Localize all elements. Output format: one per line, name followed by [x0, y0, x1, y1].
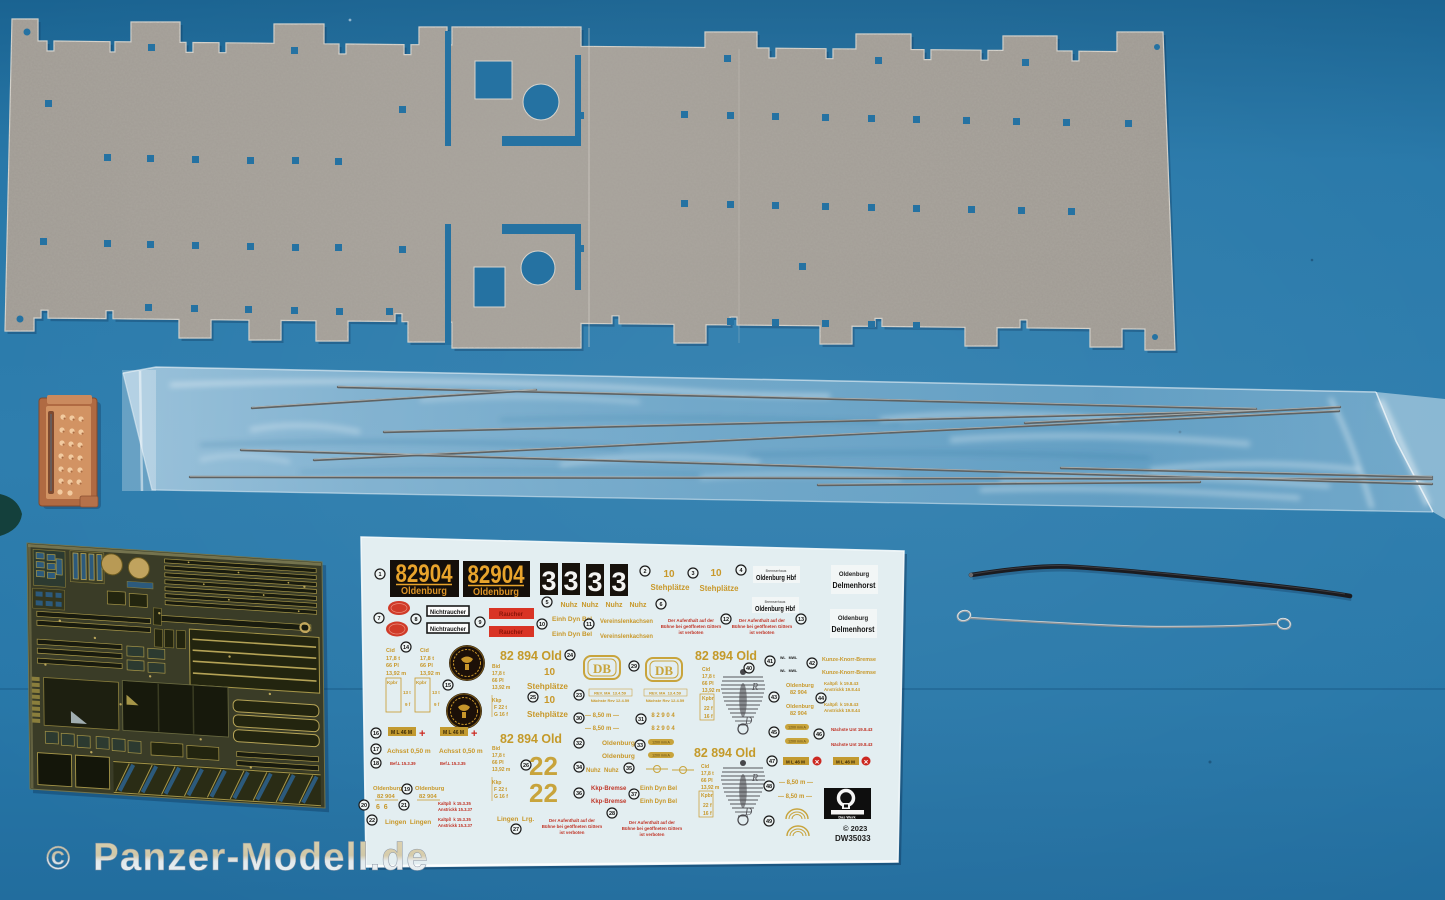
svg-text:6: 6 [659, 602, 662, 608]
svg-text:M L 46 M: M L 46 M [786, 760, 805, 765]
svg-text:Nächste Rev 12.4.59: Nächste Rev 12.4.59 [646, 698, 685, 703]
svg-text:Einh Dyn Bel: Einh Dyn Bel [640, 786, 677, 792]
svg-text:66 Pl: 66 Pl [492, 760, 504, 766]
svg-text:13 t: 13 t [432, 690, 440, 695]
svg-text:12: 12 [723, 617, 729, 623]
svg-text:6 6: 6 6 [376, 804, 388, 811]
svg-text:Raucher: Raucher [499, 612, 524, 618]
svg-text:Kkp-Bremse: Kkp-Bremse [591, 799, 627, 805]
svg-text:17,8 t: 17,8 t [386, 656, 400, 662]
svg-text:10: 10 [539, 622, 545, 628]
svg-text:17,8 t: 17,8 t [492, 671, 505, 677]
svg-text:14: 14 [403, 645, 410, 651]
svg-text:Anstrickk 19.8.44: Anstrickk 19.8.44 [824, 708, 860, 713]
svg-text:66 Pl: 66 Pl [492, 678, 504, 684]
svg-text:REV. MA 13.4.59: REV. MA 13.4.59 [594, 691, 627, 696]
svg-text:40: 40 [746, 666, 752, 672]
svg-text:17,8 t: 17,8 t [702, 674, 715, 680]
svg-text:Nuhz: Nuhz [581, 602, 599, 609]
svg-text:Kaltpß k 19.8.43: Kaltpß k 19.8.43 [824, 681, 859, 686]
svg-text:ist verboten: ist verboten [750, 630, 775, 635]
svg-text:Panzer-Modell.de: Panzer-Modell.de [93, 836, 429, 879]
svg-text:Cid: Cid [420, 648, 429, 654]
svg-text:3: 3 [563, 566, 578, 596]
svg-text:Raucher: Raucher [499, 630, 524, 636]
svg-text:Bremserhaus: Bremserhaus [766, 569, 787, 573]
svg-text:18: 18 [373, 761, 379, 767]
svg-text:13,92 m: 13,92 m [420, 671, 440, 677]
svg-text:Nächste Rev 12.4.59: Nächste Rev 12.4.59 [591, 698, 630, 703]
svg-text:Vereinslenkachsen: Vereinslenkachsen [600, 618, 653, 625]
svg-text:Stehplätze: Stehplätze [700, 583, 739, 593]
svg-text:10: 10 [544, 667, 556, 678]
svg-text:M L 46 M: M L 46 M [836, 760, 855, 765]
svg-text:22 f: 22 f [704, 706, 713, 712]
svg-text:10: 10 [544, 695, 556, 706]
svg-text:R: R [751, 682, 758, 693]
svg-text:13,92 m: 13,92 m [386, 671, 406, 677]
svg-text:3: 3 [541, 566, 556, 596]
svg-text:25: 25 [530, 695, 536, 701]
svg-text:Nuhz Nuhz: Nuhz Nuhz [586, 768, 619, 774]
svg-text:Stehplätze: Stehplätze [527, 681, 568, 691]
svg-text:26: 26 [523, 763, 529, 769]
svg-text:Oldenburg Hbf: Oldenburg Hbf [756, 575, 797, 582]
svg-text:82 894 Old: 82 894 Old [500, 731, 562, 746]
svg-text:43: 43 [771, 695, 777, 701]
svg-text:13: 13 [798, 617, 804, 623]
svg-text:— 8,50 m —: — 8,50 m — [779, 780, 813, 786]
svg-text:Nuhz: Nuhz [629, 602, 647, 609]
svg-text:Oldenburg: Oldenburg [373, 786, 403, 792]
svg-text:34: 34 [576, 765, 583, 771]
svg-text:Das Werk: Das Werk [838, 816, 856, 820]
svg-text:11: 11 [586, 622, 592, 628]
svg-text:Kkp-Bremse: Kkp-Bremse [591, 786, 627, 792]
svg-text:45: 45 [771, 730, 777, 736]
svg-text:+: + [471, 728, 477, 740]
svg-text:— 8,50 m —: — 8,50 m — [585, 726, 619, 732]
svg-text:33: 33 [637, 743, 643, 749]
svg-text:8 2 9 0 4: 8 2 9 0 4 [651, 726, 675, 732]
svg-text:Kpbr: Kpbr [416, 680, 427, 685]
svg-text:82 894 Old: 82 894 Old [694, 745, 756, 760]
svg-text:F 22 t: F 22 t [494, 787, 507, 793]
svg-text:Lingen Lrg.: Lingen Lrg. [497, 816, 534, 823]
svg-text:2: 2 [643, 569, 646, 575]
svg-text:22: 22 [529, 751, 558, 781]
svg-text:Achsst 0,50 m: Achsst 0,50 m [387, 748, 431, 755]
svg-text:✕: ✕ [863, 759, 868, 766]
svg-text:Kaltpß k 15.3.35: Kaltpß k 15.3.35 [438, 801, 471, 806]
svg-text:16 f: 16 f [704, 714, 713, 720]
svg-text:— 8,50 m —: — 8,50 m — [585, 713, 619, 719]
svg-text:Bef.L 15.3.39: Bef.L 15.3.39 [390, 761, 416, 766]
svg-text:41: 41 [767, 659, 773, 665]
svg-text:47: 47 [769, 759, 775, 765]
svg-text:49: 49 [766, 819, 772, 825]
svg-text:Bid: Bid [492, 746, 500, 752]
svg-text:22 f: 22 f [703, 803, 712, 809]
svg-text:D: D [744, 716, 753, 727]
svg-text:32: 32 [576, 741, 582, 747]
svg-text:Lingen Lingen: Lingen Lingen [385, 819, 431, 826]
svg-text:10: 10 [663, 569, 675, 580]
svg-text:ist verboten: ist verboten [679, 630, 704, 635]
svg-text:7: 7 [377, 616, 380, 622]
svg-text:Oldenburg: Oldenburg [401, 585, 447, 597]
svg-text:Nichtraucher: Nichtraucher [430, 610, 467, 616]
svg-text:82 894 Old: 82 894 Old [695, 648, 757, 663]
svg-text:Kkp: Kkp [492, 780, 501, 786]
svg-text:Delmenhorst: Delmenhorst [833, 580, 876, 590]
svg-text:82 894 Old: 82 894 Old [500, 648, 562, 663]
svg-text:Oldenburg: Oldenburg [786, 683, 814, 689]
svg-text:Der Aufenthalt auf der: Der Aufenthalt auf der [549, 818, 595, 823]
svg-text:Kpbr: Kpbr [701, 793, 713, 799]
svg-text:Nächste Unt 19.8.43: Nächste Unt 19.8.43 [831, 742, 873, 747]
svg-text:30: 30 [576, 716, 582, 722]
svg-text:3: 3 [691, 571, 694, 577]
svg-text:24: 24 [567, 653, 574, 659]
svg-text:27: 27 [513, 827, 519, 833]
svg-text:16: 16 [373, 731, 379, 737]
svg-text:Kpbr: Kpbr [702, 696, 714, 702]
svg-text:15: 15 [445, 683, 451, 689]
svg-text:8: 8 [414, 617, 417, 623]
svg-text:+: + [419, 728, 425, 740]
svg-text:31: 31 [638, 717, 644, 723]
svg-text:REV. MA 13.4.59: REV. MA 13.4.59 [649, 691, 682, 696]
svg-text:Oldenburg: Oldenburg [839, 572, 870, 578]
svg-text:Nuhz: Nuhz [560, 602, 578, 609]
svg-text:Bid: Bid [492, 664, 500, 670]
svg-text:21: 21 [401, 803, 407, 809]
svg-text:22: 22 [529, 778, 558, 808]
svg-text:8 2 9 0 4: 8 2 9 0 4 [651, 713, 675, 719]
svg-text:Der Aufenthalt auf der: Der Aufenthalt auf der [668, 618, 714, 623]
svg-text:©: © [46, 839, 70, 876]
svg-text:Vereinslenkachsen: Vereinslenkachsen [600, 633, 653, 640]
svg-text:3: 3 [611, 567, 626, 597]
svg-text:Stehplätze: Stehplätze [651, 582, 690, 592]
svg-text:Achsst 0,50 m: Achsst 0,50 m [439, 748, 483, 755]
svg-text:29: 29 [631, 664, 637, 670]
svg-text:36: 36 [576, 791, 582, 797]
svg-text:13 t: 13 t [403, 690, 411, 695]
svg-text:9 f: 9 f [434, 702, 440, 707]
svg-text:Stehplätze: Stehplätze [527, 709, 568, 719]
svg-text:Der Aufenthalt auf der: Der Aufenthalt auf der [739, 618, 785, 623]
svg-text:1200 mm A: 1200 mm A [652, 754, 670, 758]
svg-text:20: 20 [361, 803, 367, 809]
svg-text:9 f: 9 f [405, 702, 411, 707]
svg-text:Cid: Cid [386, 648, 395, 654]
svg-text:Cid: Cid [701, 764, 709, 770]
svg-text:WL MWL: WL MWL [780, 656, 798, 660]
svg-text:82 904: 82 904 [790, 711, 808, 717]
svg-text:46: 46 [816, 732, 822, 738]
svg-text:M L 46 M: M L 46 M [391, 730, 412, 736]
svg-text:Kkp: Kkp [492, 698, 501, 704]
svg-text:Nächste Unt 19.8.43: Nächste Unt 19.8.43 [831, 727, 873, 732]
svg-text:Oldenburg: Oldenburg [786, 704, 814, 710]
svg-text:13,92 m: 13,92 m [702, 688, 721, 694]
svg-text:17,8 t: 17,8 t [492, 753, 505, 759]
svg-text:66 Pl: 66 Pl [420, 663, 433, 669]
svg-text:13,92 m: 13,92 m [701, 785, 720, 791]
svg-text:Bühne bei geöffneten Gittern: Bühne bei geöffneten Gittern [622, 826, 683, 831]
svg-text:Oldenburg: Oldenburg [838, 616, 869, 622]
svg-text:1200 mm A: 1200 mm A [652, 741, 670, 745]
svg-text:66 Pl: 66 Pl [702, 681, 714, 687]
svg-text:Kunze-Knorr-Bremse: Kunze-Knorr-Bremse [822, 657, 876, 663]
svg-text:Oldenburg: Oldenburg [602, 740, 635, 747]
svg-text:17,8 t: 17,8 t [701, 771, 714, 777]
svg-text:35: 35 [626, 766, 632, 772]
svg-text:WL MWL: WL MWL [780, 669, 798, 673]
svg-text:Oldenburg: Oldenburg [602, 753, 635, 760]
svg-text:13,92 m: 13,92 m [492, 685, 511, 691]
svg-text:Kaltpß k 19.8.43: Kaltpß k 19.8.43 [824, 702, 859, 707]
svg-text:16 f: 16 f [703, 811, 712, 817]
svg-text:66 Pl: 66 Pl [386, 663, 399, 669]
svg-text:Cid: Cid [702, 667, 710, 673]
svg-text:10: 10 [710, 568, 722, 579]
svg-text:F 22 t: F 22 t [494, 705, 507, 711]
svg-text:48: 48 [766, 784, 772, 790]
svg-text:Bühne bei geöffneten Gittern: Bühne bei geöffneten Gittern [542, 824, 603, 829]
svg-text:ist verboten: ist verboten [640, 832, 665, 837]
svg-text:17: 17 [373, 747, 379, 753]
svg-text:82 904: 82 904 [419, 794, 438, 800]
svg-text:Einh Dyn Bel: Einh Dyn Bel [552, 631, 592, 638]
svg-text:82 904: 82 904 [790, 690, 808, 696]
svg-text:DB: DB [593, 661, 611, 676]
svg-text:M L 46 M: M L 46 M [443, 730, 464, 736]
svg-text:82 904: 82 904 [377, 794, 396, 800]
svg-text:G 16 f: G 16 f [494, 712, 508, 718]
svg-text:✕: ✕ [814, 759, 819, 766]
svg-text:19: 19 [404, 787, 410, 793]
svg-text:Kaltpß k 15.3.35: Kaltpß k 15.3.35 [438, 817, 471, 822]
svg-text:1200 mm A: 1200 mm A [788, 740, 806, 744]
svg-text:Nichtraucher: Nichtraucher [430, 627, 467, 633]
svg-text:3: 3 [587, 567, 602, 597]
svg-text:— 8,50 m —: — 8,50 m — [778, 794, 812, 800]
svg-text:Bühne bei geöffneten Gittern: Bühne bei geöffneten Gittern [661, 624, 722, 629]
svg-text:13,92 m: 13,92 m [492, 767, 511, 773]
svg-text:1200 mm A: 1200 mm A [788, 726, 806, 730]
svg-text:Anstrickk 19.8.44: Anstrickk 19.8.44 [824, 687, 860, 692]
svg-text:5: 5 [545, 600, 548, 606]
svg-text:9: 9 [478, 620, 481, 626]
svg-text:ist verboten: ist verboten [560, 830, 585, 835]
svg-text:Bremserhaus: Bremserhaus [765, 600, 786, 604]
svg-text:Kunze-Knorr-Bremse: Kunze-Knorr-Bremse [822, 670, 876, 676]
svg-text:17,8 t: 17,8 t [420, 656, 434, 662]
svg-text:Oldenburg: Oldenburg [415, 786, 445, 792]
svg-text:44: 44 [818, 696, 825, 702]
svg-text:37: 37 [631, 792, 637, 798]
svg-text:1: 1 [378, 572, 381, 578]
svg-text:Oldenburg: Oldenburg [473, 586, 519, 598]
svg-text:Anstrickk 15.3.37: Anstrickk 15.3.37 [438, 807, 473, 812]
svg-text:DW35033: DW35033 [835, 834, 871, 843]
svg-text:Oldenburg Hbf: Oldenburg Hbf [755, 606, 796, 613]
svg-text:© 2023: © 2023 [843, 824, 867, 833]
svg-text:Bühne bei geöffneten Gittern: Bühne bei geöffneten Gittern [732, 624, 793, 629]
svg-text:G 16 f: G 16 f [494, 794, 508, 800]
svg-text:Der Aufenthalt auf der: Der Aufenthalt auf der [629, 820, 675, 825]
svg-text:Kpbr: Kpbr [387, 680, 398, 685]
svg-text:Anstrickk 15.3.37: Anstrickk 15.3.37 [438, 823, 473, 828]
svg-text:DB: DB [655, 663, 673, 678]
svg-text:Delmenhorst: Delmenhorst [832, 624, 875, 634]
svg-text:66 Pl: 66 Pl [701, 778, 713, 784]
svg-text:Bef.L 15.3.35: Bef.L 15.3.35 [440, 761, 466, 766]
svg-text:Nuhz: Nuhz [605, 602, 623, 609]
svg-text:42: 42 [809, 661, 815, 667]
svg-text:22: 22 [369, 818, 375, 824]
svg-text:Einh Dyn Bel: Einh Dyn Bel [640, 799, 677, 805]
svg-text:28: 28 [609, 811, 615, 817]
svg-text:23: 23 [576, 693, 582, 699]
